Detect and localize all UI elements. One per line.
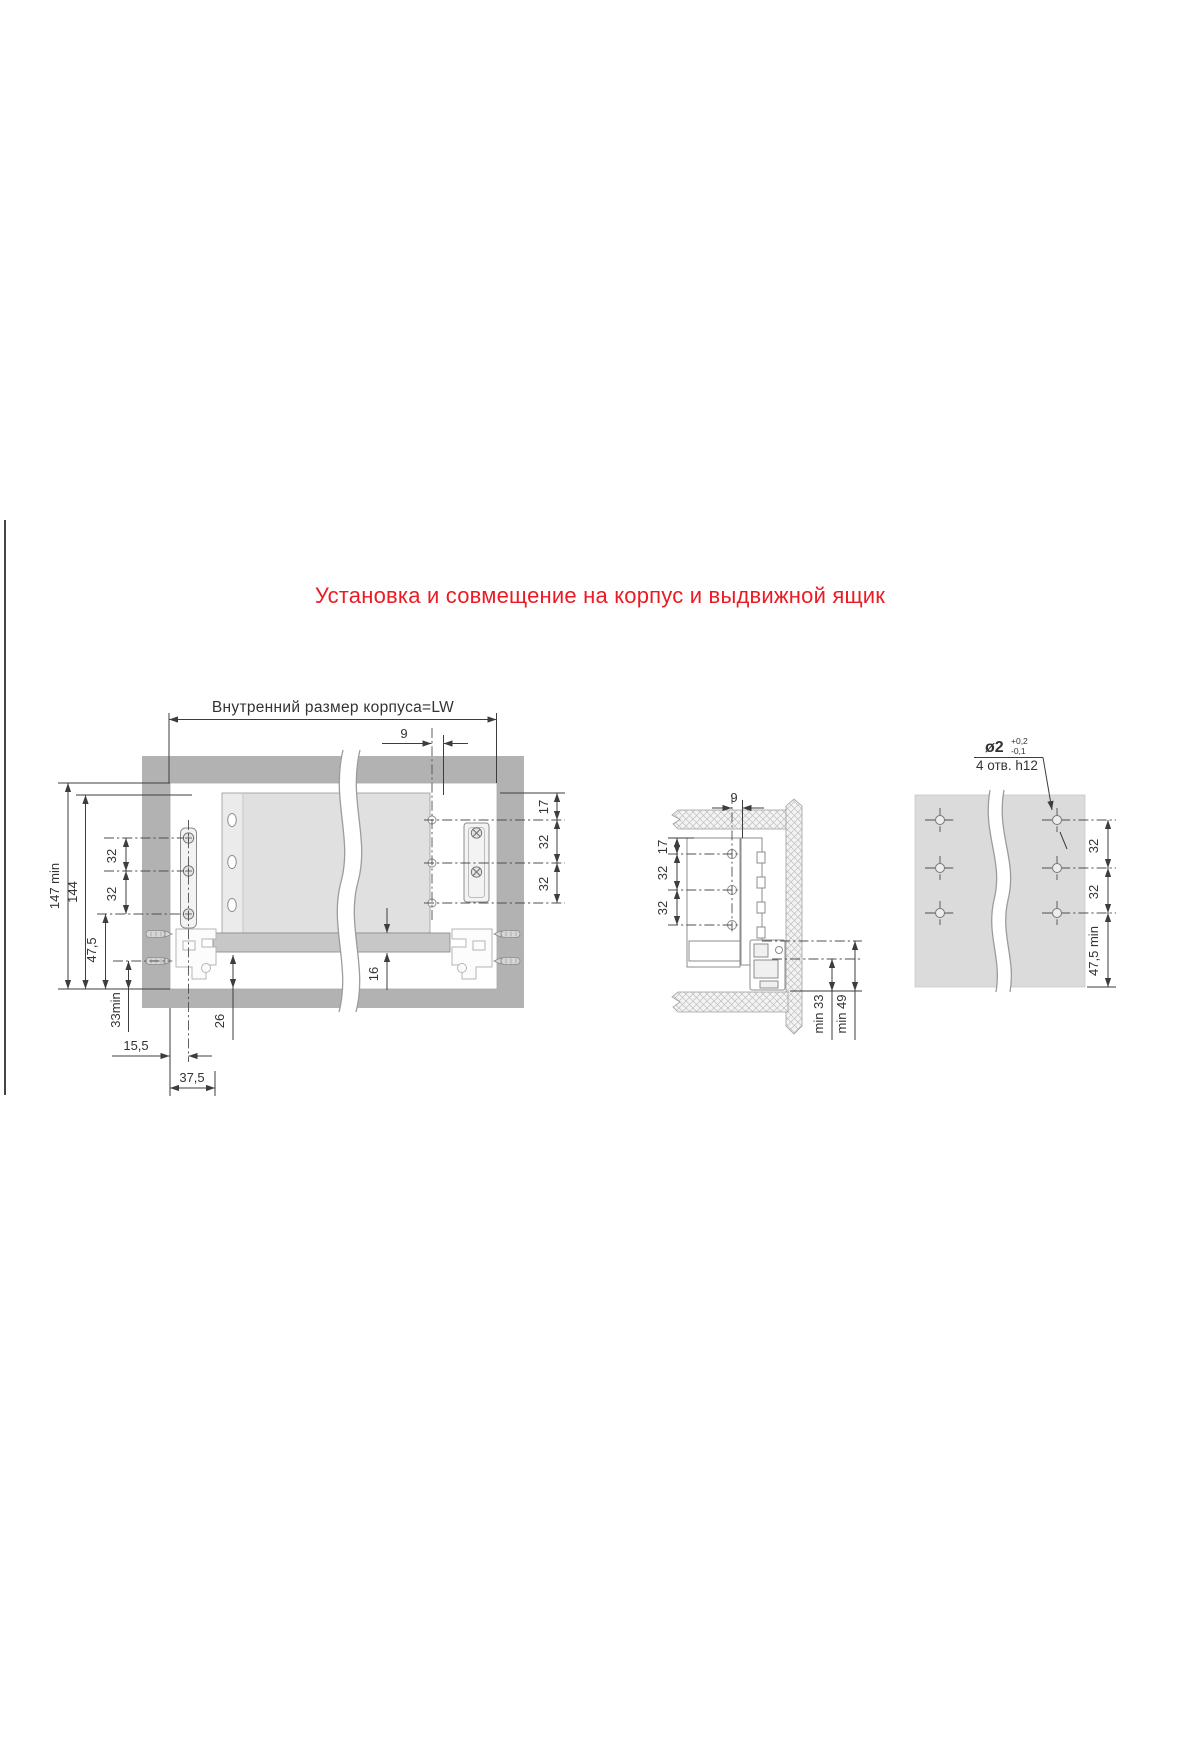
dim-label-bottom-min: min 49 [834,994,849,1033]
drawer-section [687,838,785,990]
dim-label-pitch: 32 [655,866,670,880]
dim-label-pitch: 32 [1086,839,1101,853]
cross-screw-icon [471,828,481,838]
dim-label-edge-offset: 47,5 min [1086,926,1101,976]
dim-label-rail-height: 144 [65,881,80,903]
page-title: Установка и совмещение на корпус и выдви… [0,583,1200,609]
document-page: Установка и совмещение на корпус и выдви… [0,0,1200,1760]
dim-label-top-offset: 17 [536,800,551,814]
dim-label-bottom-gap: 26 [212,1014,227,1028]
front-view-diagram: Внутренний размер корпуса=LW 9 147 min 1… [40,695,580,1105]
drawer-bottom-panel [213,933,450,952]
dim-label-front-hole: 15,5 [123,1038,148,1053]
dim-label-rear-offset: 9 [400,726,407,741]
rear-bracket [464,823,489,902]
drawer-side-panel [222,793,430,933]
dim-label-pitch: 32 [1086,885,1101,899]
dim-label-pitch: 32 [104,887,119,901]
dim-label-inner-width: Внутренний размер корпуса=LW [212,699,454,716]
dim-label-bottom-hole: 47,5 [84,937,99,962]
dim-label-pitch: 32 [104,849,119,863]
drawer-bottom-section [689,941,740,961]
dim-label-bracket-depth: 37,5 [179,1070,204,1085]
section-view-diagram: 9 17 32 32 min 33 min 49 [640,780,890,1050]
drilling-pattern-diagram: ø2 +0,2 -0,1 4 отв. h12 32 32 47,5 min [900,725,1160,1000]
dim-label-pitch: 32 [655,901,670,915]
dim-label-inner-height: 147 min [47,863,62,909]
cross-screw-icon [471,867,481,877]
callout-tolerance-minus: -0,1 [1011,746,1026,756]
drawer-oval-hole [228,899,237,912]
dim-label-bottom-min: min 33 [811,994,826,1033]
callout-holes-note: 4 отв. h12 [976,758,1038,773]
drawer-oval-hole [228,856,237,869]
callout-diameter: ø2 [985,739,1004,756]
dim-label-bottom-clearance: 33min [108,992,123,1027]
cabinet-top-panel-section [672,810,788,829]
drawer-oval-hole [228,814,237,827]
dimensions: 32 32 47,5 min [1086,820,1116,987]
dim-label-bottom-thickness: 16 [366,967,381,981]
rail-mechanism [750,940,785,990]
dim-label-pitch: 32 [536,877,551,891]
dim-label-top-offset: 17 [655,840,670,854]
cabinet-bottom-panel-section [672,992,788,1012]
dim-label-pitch: 32 [536,835,551,849]
dim-label-rear-offset: 9 [730,790,737,805]
callout-tolerance-plus: +0,2 [1011,736,1028,746]
